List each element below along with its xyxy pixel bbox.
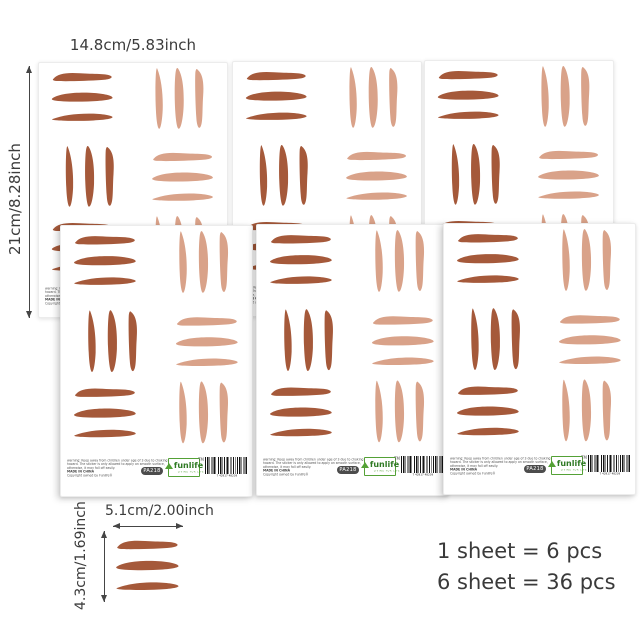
strokes-vertical-light (179, 231, 228, 293)
single-sticker-strokes (115, 536, 181, 594)
brush-stroke-pattern (444, 224, 635, 450)
trademark-mark: TM (394, 456, 400, 461)
warning-text: warning: Keep away from children under a… (263, 458, 341, 495)
product-code-badge: PA218 (141, 467, 163, 475)
strokes-horizontal-light (538, 151, 599, 199)
warning-text-lines: warning: Keep away from children under a… (263, 458, 341, 477)
barcode-bars (588, 455, 630, 472)
barcode-digits: 7 42917 48239 (401, 473, 443, 480)
product-code-badge: PA218 (337, 466, 359, 474)
sticker-height-arrow (104, 531, 105, 602)
brush-stroke-group (471, 308, 520, 370)
funlife-logo-row: funlife (552, 459, 582, 468)
funlife-wordmark: funlife (370, 460, 399, 469)
brush-stroke-group (562, 229, 611, 291)
barcode: 7 42917 48239 (401, 456, 443, 482)
strokes-horizontal-light (346, 152, 407, 200)
strokes-vertical-light (349, 67, 397, 128)
pcs-line-1: 1 sheet = 6 pcs (437, 536, 616, 567)
strokes-vertical-light (541, 66, 589, 127)
funlife-tagline: LIVING FOR LIFE (365, 470, 395, 476)
funlife-logo-row: funlife (365, 460, 395, 469)
strokes-vertical-dark (452, 144, 500, 205)
strokes-horizontal-dark (438, 71, 499, 119)
sheet-height-arrow (29, 66, 30, 318)
strokes-horizontal-dark (246, 72, 307, 120)
product-infographic: { "annotations": { "sheet_width": "14.8c… (0, 0, 640, 640)
brush-stroke-group (66, 146, 114, 207)
sticker-width-label: 5.1cm/2.00inch (105, 503, 197, 519)
strokes-horizontal-dark (457, 386, 519, 435)
strokes-horizontal-dark (74, 388, 136, 437)
strokes-vertical-dark (66, 146, 114, 207)
sheet-footer: warning: Keep away from children under a… (444, 455, 635, 482)
strokes-horizontal-dark (52, 73, 113, 121)
strokes-vertical-light (179, 382, 228, 444)
strokes-vertical-light (375, 230, 424, 292)
barcode-digits-text: 7 42917 48239 (600, 472, 619, 475)
brush-stroke-group (375, 381, 424, 443)
brush-stroke-group (116, 541, 178, 590)
funlife-logo-row: funlife (169, 461, 199, 470)
warning-text-lines: warning: Keep away from children under a… (450, 457, 528, 476)
barcode-digits: 7 42917 48239 (205, 474, 247, 481)
sheet-height-label: 21cm/8.28inch (6, 135, 24, 255)
product-code-badge: PA218 (524, 465, 546, 473)
strokes-horizontal-light (372, 316, 434, 365)
barcode-bars (401, 456, 443, 473)
sheet-footer: warning: Keep away from children under a… (257, 456, 448, 483)
pcs-info: 1 sheet = 6 pcs 6 sheet = 36 pcs (437, 536, 616, 598)
strokes-vertical-dark (88, 310, 137, 372)
funlife-wordmark: funlife (174, 461, 203, 470)
funlife-wordmark: funlife (557, 459, 586, 468)
funlife-tagline-text: LIVING FOR LIFE (178, 471, 191, 474)
sheet-footer: warning: Keep away from children under a… (61, 457, 252, 484)
brush-stroke-pattern (61, 226, 252, 452)
barcode-digits-text: 7 42917 48239 (217, 474, 236, 477)
barcode: 7 42917 48239 (205, 457, 247, 483)
sticker-height-label: 4.3cm/1.69inch (73, 524, 89, 610)
brush-stroke-group (452, 144, 500, 205)
brush-stroke-group (88, 310, 137, 372)
brush-stroke-group (260, 145, 308, 206)
strokes-vertical-light (375, 381, 424, 443)
warning-text: warning: Keep away from children under a… (450, 457, 528, 494)
strokes-horizontal-dark (74, 236, 136, 285)
funlife-tagline: LIVING FOR LIFE (169, 471, 199, 477)
funlife-logo: TM funlife LIVING FOR LIFE (168, 458, 200, 477)
funlife-logo: TM funlife LIVING FOR LIFE (551, 456, 583, 475)
strokes-horizontal-dark (270, 387, 332, 436)
warning-text: warning: Keep away from children under a… (67, 459, 145, 496)
trademark-mark: TM (581, 455, 587, 460)
brush-stroke-group (179, 231, 228, 293)
strokes-vertical-light (562, 229, 611, 291)
brush-stroke-pattern (257, 225, 448, 451)
barcode-digits-text: 7 42917 48239 (413, 473, 432, 476)
strokes-horizontal-light (176, 317, 238, 366)
strokes-horizontal-dark (457, 234, 519, 283)
sheet-front-2: warning: Keep away from children under a… (256, 224, 449, 496)
barcode-bars (205, 457, 247, 474)
brush-stroke-group (562, 380, 611, 442)
brush-stroke-group (541, 66, 589, 127)
strokes-horizontal-dark (270, 235, 332, 284)
strokes-vertical-light (562, 380, 611, 442)
funlife-roof-icon (361, 462, 369, 468)
strokes-vertical-light (155, 68, 203, 129)
copyright-line: Copyright owned by Funlife® (450, 472, 528, 476)
funlife-tagline: LIVING FOR LIFE (552, 469, 582, 475)
strokes-vertical-dark (284, 309, 333, 371)
funlife-logo: TM funlife LIVING FOR LIFE (364, 457, 396, 476)
brush-stroke-group (284, 309, 333, 371)
copyright-line: Copyright owned by Funlife® (263, 473, 341, 477)
funlife-tagline-text: LIVING FOR LIFE (374, 470, 387, 473)
strokes-horizontal-light (152, 153, 213, 201)
sheet-front-3: warning: Keep away from children under a… (443, 223, 636, 495)
barcode: 7 42917 48239 (588, 455, 630, 481)
funlife-tagline-text: LIVING FOR LIFE (561, 469, 574, 472)
warning-text-lines: warning: Keep away from children under a… (67, 459, 145, 478)
strokes-vertical-dark (260, 145, 308, 206)
sticker-width-arrow (113, 526, 183, 527)
strokes-horizontal-light (559, 315, 621, 364)
copyright-line: Copyright owned by Funlife® (67, 474, 145, 478)
pcs-line-2: 6 sheet = 36 pcs (437, 567, 616, 598)
brush-stroke-group (179, 382, 228, 444)
strokes-vertical-dark (471, 308, 520, 370)
brush-stroke-group (375, 230, 424, 292)
sheet-width-label: 14.8cm/5.83inch (40, 36, 226, 54)
barcode-digits: 7 42917 48239 (588, 472, 630, 479)
brush-stroke-group (155, 68, 203, 129)
funlife-roof-icon (165, 463, 173, 469)
trademark-mark: TM (198, 457, 204, 462)
sheet-front-1: warning: Keep away from children under a… (60, 225, 253, 497)
funlife-roof-icon (548, 461, 556, 467)
brush-stroke-group (349, 67, 397, 128)
